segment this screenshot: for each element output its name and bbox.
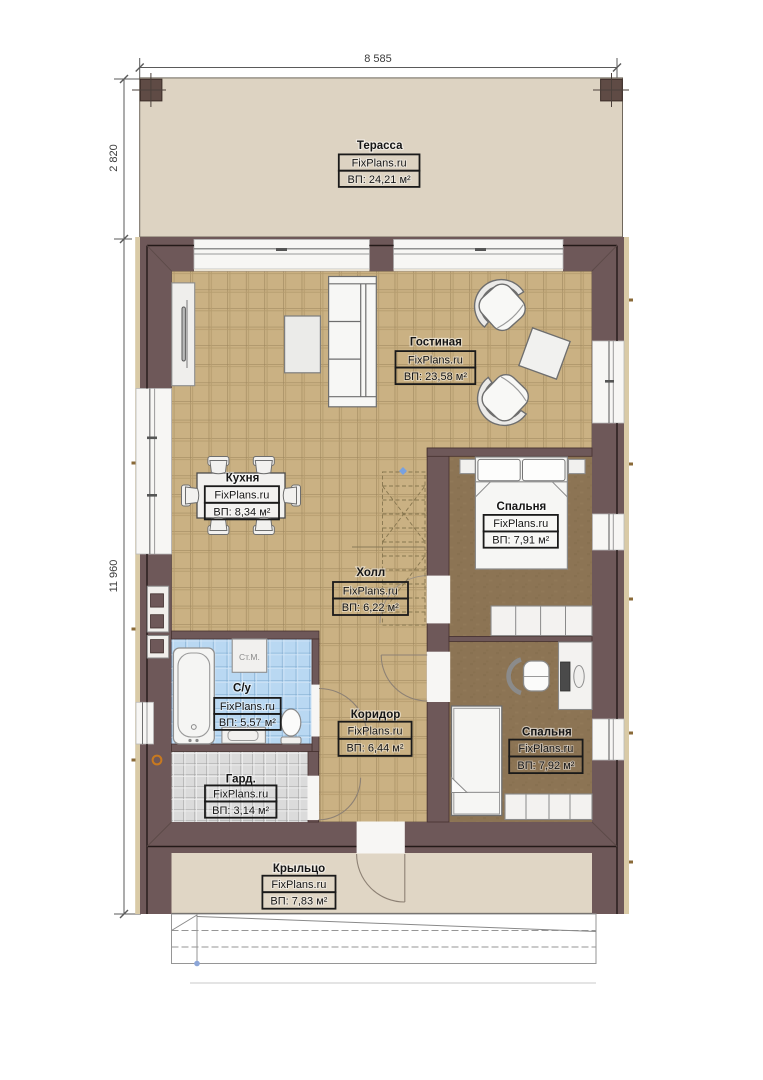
svg-text:ВП: 23,58 м²: ВП: 23,58 м² <box>404 371 468 383</box>
svg-text:FixPlans.ru: FixPlans.ru <box>343 585 398 597</box>
svg-text:Спальня: Спальня <box>497 501 547 513</box>
svg-text:FixPlans.ru: FixPlans.ru <box>518 743 573 755</box>
svg-text:Ст.М.: Ст.М. <box>239 652 260 662</box>
svg-text:ВП: 7,91 м²: ВП: 7,91 м² <box>492 535 549 547</box>
svg-text:Коридор: Коридор <box>351 709 401 721</box>
svg-text:Кухня: Кухня <box>226 473 260 485</box>
svg-text:8 585: 8 585 <box>364 53 392 65</box>
svg-text:Гостиная: Гостиная <box>410 337 462 349</box>
svg-text:ВП: 6,44 м²: ВП: 6,44 м² <box>346 742 403 754</box>
svg-text:Спальня: Спальня <box>522 727 572 739</box>
svg-text:Гард.: Гард. <box>226 774 256 786</box>
svg-text:ВП: 24,21 м²: ВП: 24,21 м² <box>348 174 412 186</box>
svg-text:ВП: 7,92 м²: ВП: 7,92 м² <box>517 760 574 772</box>
svg-text:FixPlans.ru: FixPlans.ru <box>214 490 269 502</box>
svg-text:С/у: С/у <box>233 683 252 695</box>
svg-text:FixPlans.ru: FixPlans.ru <box>213 789 268 801</box>
svg-text:Холл: Холл <box>356 567 385 579</box>
svg-text:ВП: 6,22 м²: ВП: 6,22 м² <box>342 602 399 614</box>
svg-text:11 960: 11 960 <box>108 560 120 593</box>
svg-text:FixPlans.ru: FixPlans.ru <box>408 354 463 366</box>
svg-text:FixPlans.ru: FixPlans.ru <box>220 701 275 713</box>
svg-text:2 820: 2 820 <box>108 144 120 172</box>
svg-text:FixPlans.ru: FixPlans.ru <box>271 879 326 891</box>
svg-text:FixPlans.ru: FixPlans.ru <box>352 158 407 170</box>
svg-text:ВП: 3,14 м²: ВП: 3,14 м² <box>212 805 269 817</box>
svg-text:FixPlans.ru: FixPlans.ru <box>493 518 548 530</box>
svg-text:ВП: 5,57 м²: ВП: 5,57 м² <box>219 717 276 729</box>
svg-text:FixPlans.ru: FixPlans.ru <box>347 725 402 737</box>
svg-text:Терасса: Терасса <box>357 140 403 152</box>
svg-text:Крыльцо: Крыльцо <box>273 863 325 875</box>
svg-text:ВП: 8,34 м²: ВП: 8,34 м² <box>213 506 270 518</box>
svg-text:ВП: 7,83 м²: ВП: 7,83 м² <box>270 896 327 908</box>
